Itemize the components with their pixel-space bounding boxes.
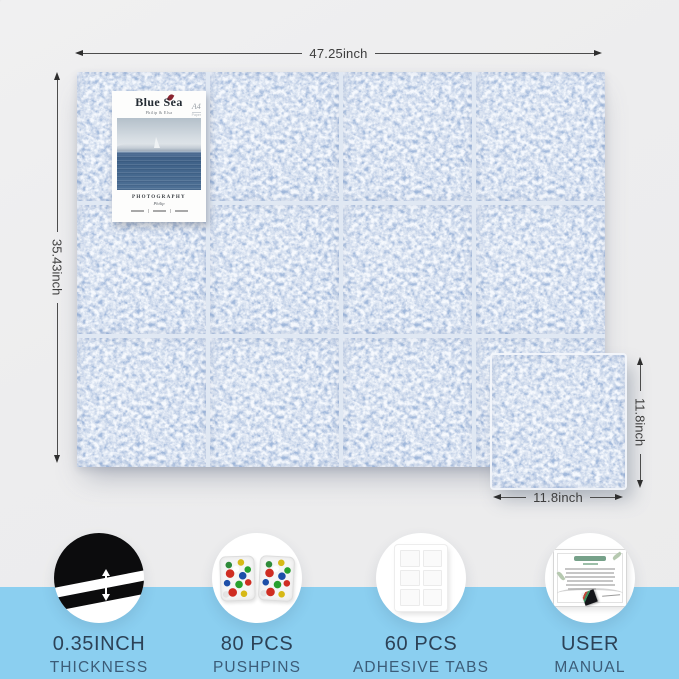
feature-user-manual: USER MANUAL — [515, 533, 665, 677]
feature-value: 80 PCS — [182, 633, 332, 656]
manual-wrap — [545, 533, 635, 623]
arrow-right-icon — [615, 494, 623, 500]
arrow-down-icon — [54, 455, 60, 463]
felt-tile — [343, 205, 472, 334]
dimension-line — [57, 80, 58, 232]
leaf-decoration-icon — [612, 551, 622, 560]
felt-tile — [476, 72, 605, 201]
felt-tile — [343, 72, 472, 201]
poster-footer-items — [117, 209, 201, 213]
dimension-line — [590, 497, 615, 498]
pushpin-bag — [258, 555, 295, 602]
dimension-tile-height: 11.8inch — [633, 357, 647, 488]
dimension-line — [83, 53, 302, 54]
sea-photo — [117, 118, 201, 190]
manual-page — [553, 549, 627, 607]
poster-subtitle: Philip & Elsa — [117, 110, 201, 115]
arrow-up-icon — [637, 357, 643, 365]
leaf-decoration-icon — [556, 571, 565, 581]
sailboat-icon — [154, 137, 160, 148]
a4-badge: A4 Paper — [192, 97, 201, 118]
dimension-line — [501, 497, 526, 498]
feature-label: PUSHPINS — [182, 659, 332, 677]
felt-tile — [210, 338, 339, 467]
poster-author: Philip — [117, 201, 201, 206]
board-height-label: 35.43inch — [50, 232, 65, 302]
felt-tile — [77, 205, 206, 334]
feature-value: USER — [515, 633, 665, 656]
dimension-line — [640, 365, 641, 391]
feature-value: 0.35INCH — [24, 633, 174, 656]
tile-width-label: 11.8inch — [526, 490, 590, 505]
dimension-board-height: 35.43inch — [50, 72, 64, 463]
adhesive-tabs-icon — [376, 533, 466, 623]
pushpins-icon — [212, 533, 302, 623]
poster-title: Blue Sea — [117, 96, 201, 109]
single-felt-tile — [492, 355, 625, 488]
feature-label: THICKNESS — [24, 659, 174, 677]
manual-header-band — [574, 556, 606, 561]
felt-thickness-icon — [54, 533, 144, 623]
black-felt-layer — [54, 533, 144, 589]
dimension-line — [375, 53, 594, 54]
felt-tile — [343, 338, 472, 467]
feature-adhesive-tabs: 60 PCS ADHESIVE TABS — [346, 533, 496, 677]
feature-label: MANUAL — [515, 659, 665, 677]
user-manual-icon — [545, 533, 635, 623]
pushpin-bag — [219, 555, 256, 601]
a4-badge-size: A4 — [192, 103, 201, 113]
arrow-up-icon — [54, 72, 60, 80]
dimension-tile-width: 11.8inch — [493, 491, 623, 503]
tab-sheet-wrap — [376, 533, 466, 623]
dimension-line — [640, 454, 641, 480]
arrow-left-icon — [493, 494, 501, 500]
felt-tile — [476, 205, 605, 334]
thickness-arrow-icon — [105, 575, 107, 595]
tile-height-label: 11.8inch — [633, 391, 648, 453]
tab-sheet — [395, 545, 447, 611]
feature-value: 60 PCS — [346, 633, 496, 656]
poster: Blue Sea A4 Paper Philip & Elsa PHOTOGRA… — [112, 91, 206, 222]
arrow-left-icon — [75, 50, 83, 56]
product-infographic: Blue Sea A4 Paper Philip & Elsa PHOTOGRA… — [0, 0, 679, 679]
sea-texture — [117, 152, 201, 189]
pushpin-bags — [212, 533, 302, 623]
board-width-label: 47.25inch — [302, 46, 374, 61]
feature-pushpins: 80 PCS PUSHPINS — [182, 533, 332, 677]
arrow-right-icon — [594, 50, 602, 56]
dimension-line — [57, 303, 58, 455]
dimension-board-width: 47.25inch — [75, 48, 602, 58]
felt-tile — [210, 205, 339, 334]
felt-tile — [77, 338, 206, 467]
felt-tile — [210, 72, 339, 201]
arrow-down-icon — [637, 480, 643, 488]
feature-thickness: 0.35INCH THICKNESS — [24, 533, 174, 677]
feature-label: ADHESIVE TABS — [346, 659, 496, 677]
poster-caption: PHOTOGRAPHY — [117, 195, 201, 200]
